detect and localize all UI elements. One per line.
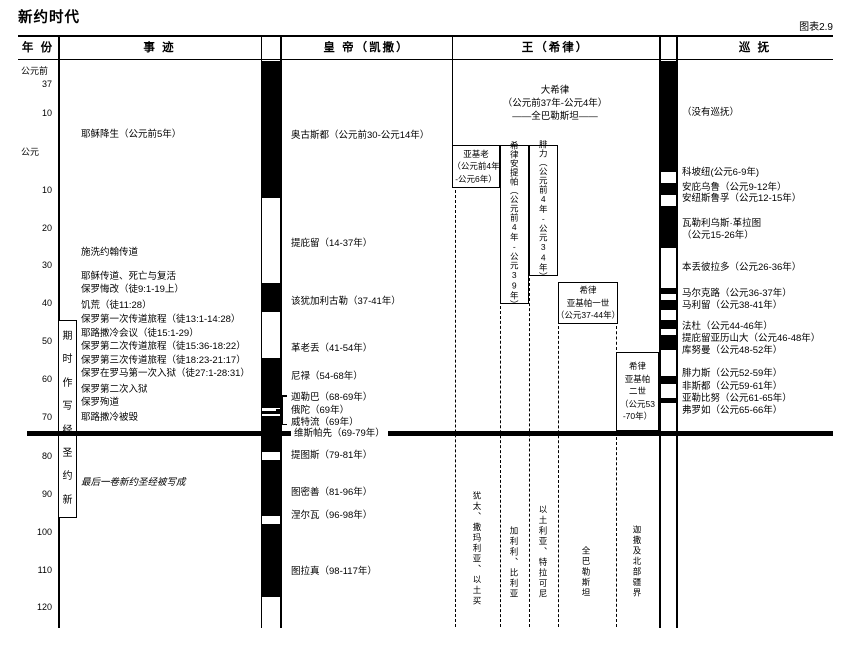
scripture-period-char: 作 — [59, 372, 76, 395]
year-tick: 37 — [16, 79, 52, 90]
governor-label: 弗罗如（公元65-66年） — [682, 405, 782, 416]
box-line: 希律 — [579, 284, 596, 297]
governor-term-bar-segment — [661, 183, 676, 195]
dashed-territory-line — [616, 326, 617, 350]
year-tick: 30 — [16, 260, 52, 271]
grid-line — [18, 35, 833, 37]
territory-label: 迦撒及北部疆界 — [631, 525, 642, 599]
event-label: 保罗悔改（徒9:1-19上） — [81, 284, 184, 295]
year-tick: 110 — [16, 565, 52, 576]
event-label: 耶路撒冷会议（徒15:1-29） — [81, 328, 199, 339]
governor-label: 马利留（公元38-41年） — [682, 300, 782, 311]
governor-term-bar-segment — [661, 376, 676, 384]
ad70-divider-line — [27, 431, 833, 436]
governor-label: 科坡纽(公元6-9年) — [682, 167, 759, 178]
event-label: 保罗在罗马第一次入狱（徒27:1-28:31） — [81, 368, 250, 379]
emperor-label: 该犹加利古勒（37-41年） — [291, 296, 401, 307]
year-tick: 80 — [16, 451, 52, 462]
column-header-events: 事 迹 — [58, 38, 261, 58]
page-title: 新约时代 — [18, 6, 80, 27]
governor-term-bar-segment — [661, 335, 676, 350]
governor-label: 法杜（公元44-46年） — [682, 321, 773, 332]
year-tick: 公元 — [16, 147, 52, 158]
emperor-label: 革老丢（41-54年） — [291, 343, 372, 354]
box-line: （公元53 — [620, 398, 655, 411]
dashed-territory-line — [500, 306, 501, 627]
year-tick: 100 — [16, 527, 52, 538]
herod-great-line: ——全巴勒斯坦—— — [452, 111, 658, 122]
event-label: 饥荒（徒11:28） — [81, 300, 152, 311]
emperor-reign-bar-segment — [262, 460, 280, 516]
emperor-label: 尼禄（54-68年） — [291, 371, 363, 382]
governor-term-bar-segment — [661, 320, 676, 329]
governor-label: 非斯都（公元59-61年） — [682, 381, 782, 392]
column-header-governors: 巡 抚 — [677, 38, 833, 58]
territory-label: 以土利亚、特拉可尼 — [537, 505, 548, 600]
succession-bracket-segment — [281, 424, 287, 426]
governor-label: 马尔克路（公元36-37年） — [682, 288, 792, 299]
governor-term-bar-segment — [661, 300, 676, 310]
box-line: 亚基帕一世 — [567, 297, 610, 310]
governor-term-bar-segment — [661, 206, 676, 248]
event-label: 耶路撒冷被毁 — [81, 412, 138, 423]
column-header-kings: 王（希律） — [452, 38, 659, 58]
king-box: 希律安提帕（公元前4年-公元39年） — [500, 145, 529, 304]
emperor-label: 提庇留（14-37年） — [291, 238, 372, 249]
year-tick: 90 — [16, 489, 52, 500]
figure-number-label: 图表2.9 — [763, 18, 833, 33]
box-line: （公元37-44年） — [556, 309, 620, 322]
year-tick: 40 — [16, 298, 52, 309]
governor-term-bar-segment — [661, 398, 676, 403]
year-tick: 10 — [16, 185, 52, 196]
succession-bracket-segment — [276, 409, 282, 411]
governor-term-bar-segment — [661, 288, 676, 294]
event-label: 施洗约翰传道 — [81, 247, 138, 258]
territory-label: 全巴勒斯坦 — [580, 546, 591, 599]
governor-label: （公元15-26年） — [682, 230, 754, 241]
emperor-label: 维斯帕先（69-79年） — [291, 428, 388, 439]
box-line: 希律 — [629, 360, 646, 373]
governor-label: 安庇乌鲁（公元9-12年） — [682, 182, 787, 193]
territory-label: 犹太、撒玛利亚、以土买 — [471, 491, 482, 607]
dashed-territory-line — [529, 278, 530, 627]
scripture-period-char: 新 — [59, 489, 76, 512]
scripture-period-char: 写 — [59, 395, 76, 418]
column-header-year: 年 份 — [18, 38, 58, 58]
emperor-reign-bar-segment — [262, 283, 280, 312]
event-label: 保罗殉道 — [81, 397, 119, 408]
governor-label: 腓力斯（公元52-59年） — [682, 368, 782, 379]
governor-label: 库努曼（公元48-52年） — [682, 345, 782, 356]
grid-line — [280, 35, 282, 628]
king-box: 希律亚基帕一世（公元37-44年） — [558, 282, 618, 324]
box-line: （公元前4年 — [452, 160, 499, 173]
emperor-label: 俄陀（69年） — [291, 405, 349, 416]
emperor-label: 奥古斯都（公元前30-公元14年） — [291, 130, 429, 141]
herod-great-line: 大希律 — [452, 85, 658, 96]
scripture-period-char: 圣 — [59, 442, 76, 465]
event-label: 保罗第二次传道旅程（徒15:36-18:22） — [81, 341, 246, 352]
governor-label: 亚勒比努（公元61-65年） — [682, 393, 792, 404]
year-tick: 公元前 — [16, 66, 52, 77]
territory-label: 加利利、比利亚 — [508, 526, 519, 600]
year-tick: 20 — [16, 223, 52, 234]
box-line: 二世 — [629, 385, 646, 398]
emperor-reign-bar-segment — [262, 61, 280, 198]
emperor-reign-bar-segment — [262, 411, 280, 414]
emperor-reign-bar-segment — [262, 358, 280, 408]
emperor-label: 威特流（69年） — [291, 417, 359, 428]
emperor-label: 图拉真（98-117年） — [291, 566, 377, 577]
dashed-territory-line — [616, 437, 617, 627]
governor-label: 本丢彼拉多（公元26-36年） — [682, 262, 801, 273]
column-header-emperors: 皇 帝（凯撒） — [281, 38, 452, 58]
scripture-period-char: 时 — [59, 348, 76, 371]
year-tick: 50 — [16, 336, 52, 347]
year-tick: 10 — [16, 108, 52, 119]
box-line: -70年） — [623, 410, 652, 423]
box-line: -公元6年） — [455, 173, 497, 186]
event-label: 最后一卷新约圣经被写成 — [81, 478, 186, 489]
year-tick: 60 — [16, 374, 52, 385]
king-box: 腓力（公元前4年-公元34年） — [529, 145, 558, 276]
scripture-period-char: 期 — [59, 325, 76, 348]
governor-label: （没有巡抚） — [682, 107, 739, 118]
scripture-period-char: 约 — [59, 465, 76, 488]
governor-label: 提庇留亚历山大（公元46-48年） — [682, 333, 820, 344]
grid-line — [676, 35, 678, 628]
dashed-territory-line — [455, 190, 456, 627]
herod-great-line: （公元前37年-公元4年） — [452, 98, 658, 109]
event-label: 保罗第三次传道旅程（徒18:23-21:17） — [81, 355, 246, 366]
grid-line — [18, 59, 833, 61]
emperor-reign-bar-segment — [262, 524, 280, 597]
event-label: 耶稣降生（公元前5年） — [81, 129, 181, 140]
event-label: 保罗第二次入狱 — [81, 384, 148, 395]
box-line: 亚基老 — [463, 148, 489, 161]
emperor-label: 提图斯（79-81年） — [291, 450, 372, 461]
succession-bracket-segment — [281, 395, 287, 397]
king-box: 希律亚基帕二世（公元53-70年） — [616, 352, 659, 431]
event-label: 耶稣传道、死亡与复活 — [81, 271, 176, 282]
emperor-label: 迦勒巴（68-69年） — [291, 392, 372, 403]
box-line: 亚基帕 — [625, 373, 651, 386]
governor-label: 安纽斯鲁孚（公元12-15年） — [682, 193, 801, 204]
governor-term-bar-segment — [661, 61, 676, 172]
governor-label: 瓦勒利乌斯·革拉图 — [682, 218, 761, 229]
emperor-label: 图密善（81-96年） — [291, 487, 372, 498]
dashed-territory-line — [558, 326, 559, 627]
new-testament-era-chart: 新约时代 图表2.9 年 份 事 迹 皇 帝（凯撒） 王（希律） 巡 抚 公元前… — [0, 0, 864, 648]
scripture-writing-period-box: 期时作写经圣约新 — [58, 320, 77, 518]
emperor-label: 涅尔瓦（96-98年） — [291, 510, 372, 521]
event-label: 保罗第一次传道旅程（徒13:1-14:28） — [81, 314, 240, 325]
year-tick: 70 — [16, 412, 52, 423]
year-tick: 120 — [16, 602, 52, 613]
king-box: 亚基老（公元前4年-公元6年） — [452, 145, 500, 188]
